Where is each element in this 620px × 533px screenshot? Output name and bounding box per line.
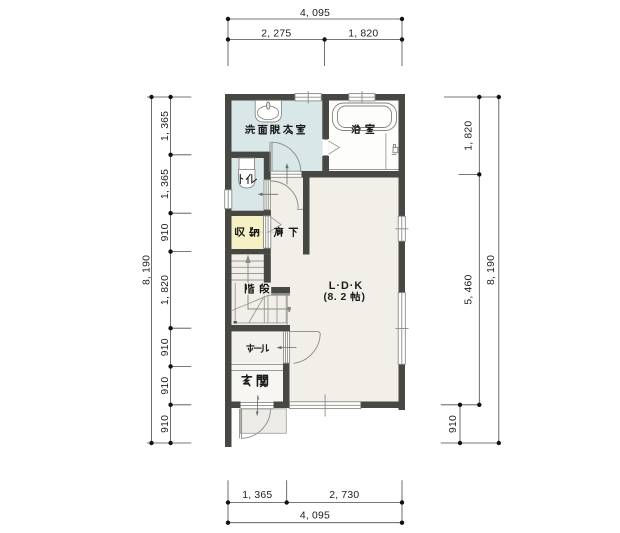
svg-text:8, 190: 8, 190 xyxy=(486,255,497,285)
svg-text:910: 910 xyxy=(160,338,171,356)
svg-text:1, 365: 1, 365 xyxy=(242,490,272,501)
svg-text:910: 910 xyxy=(160,223,171,241)
svg-text:1, 365: 1, 365 xyxy=(160,169,171,199)
svg-text:4, 095: 4, 095 xyxy=(300,8,330,19)
svg-text:910: 910 xyxy=(160,415,171,433)
svg-text:(8. 2: (8. 2 xyxy=(324,292,347,303)
svg-text:1, 365: 1, 365 xyxy=(160,111,171,141)
svg-text:1, 820: 1, 820 xyxy=(160,275,171,305)
svg-text:910: 910 xyxy=(160,377,171,395)
svg-text:): ) xyxy=(362,292,365,303)
svg-text:4, 095: 4, 095 xyxy=(300,511,330,522)
svg-text:910: 910 xyxy=(448,415,459,433)
svg-text:8, 190: 8, 190 xyxy=(142,255,153,285)
svg-text:L·D·K: L·D·K xyxy=(329,280,363,292)
svg-text:2, 275: 2, 275 xyxy=(261,29,291,40)
svg-text:1, 820: 1, 820 xyxy=(464,121,475,151)
svg-text:2, 730: 2, 730 xyxy=(329,490,359,501)
svg-text:5, 460: 5, 460 xyxy=(464,275,475,305)
svg-text:1, 820: 1, 820 xyxy=(348,29,378,40)
